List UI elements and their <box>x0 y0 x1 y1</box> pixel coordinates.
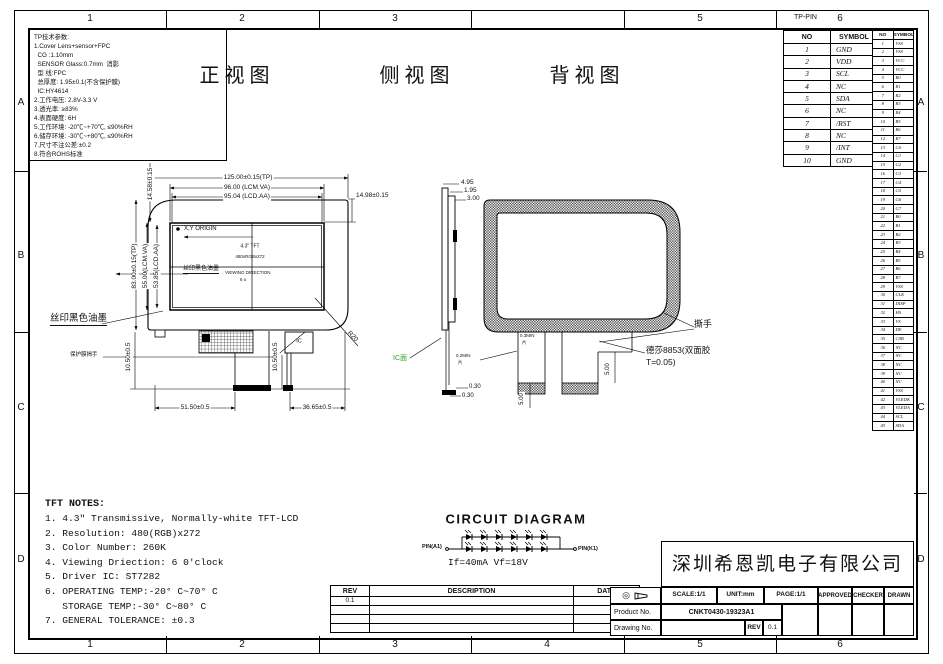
dim-fpc-height: 10.50±0.5 <box>126 342 133 373</box>
dim-width-tp: 125.00±0.15(TP) <box>223 175 274 182</box>
dim-fpc-position: 51.50±0.5 <box>180 405 211 412</box>
tape-label-line2: T=0.05) <box>646 358 676 367</box>
checker-value-cell <box>852 604 884 636</box>
panel-resolution-label: 480xRGBx272 <box>235 255 264 260</box>
ic-side-label: IC面 <box>393 355 407 362</box>
drawing-no-value <box>661 620 745 636</box>
text-line: 6. OPERATING TEMP:-20° C~70° C <box>45 585 350 600</box>
dim-tp-thickness: 1.95 <box>464 188 477 195</box>
tft-notes-title: TFT NOTES: <box>45 497 350 512</box>
dim-foot-1: 0.30 <box>469 384 481 390</box>
table-row <box>331 615 640 624</box>
circuit-leds <box>446 530 577 552</box>
text-line: 7. GENERAL TOLERANCE: ±0.3 <box>45 614 350 629</box>
table-cell <box>370 606 574 615</box>
front-view-outline <box>148 200 348 391</box>
table-cell <box>370 597 574 606</box>
circuit-pin-cathode: PIN(K1) <box>578 547 598 553</box>
protective-film-tab-label: 保护膜揭手 <box>70 353 98 359</box>
table-cell <box>331 615 370 624</box>
checker-header: CHECKER <box>852 587 884 604</box>
approved-value-cell <box>818 604 852 636</box>
circuit-pin-anode: PIN(A1) <box>422 545 442 551</box>
dim-ic-position: 36.65±0.5 <box>302 405 333 412</box>
text-line: STORAGE TEMP:-30° C~80° C <box>45 600 350 615</box>
circuit-led-spec: If=40mA Vf=18V <box>448 558 528 568</box>
drawn-value-cell <box>884 604 914 636</box>
drawn-header: DRAWN <box>884 587 914 604</box>
text-line: 5. Driver IC: ST7282 <box>45 570 350 585</box>
table-row: 0.1 <box>331 597 640 606</box>
ic-label: IC <box>296 339 302 345</box>
dim-ic-height: 10.50±0.5 <box>273 342 280 373</box>
dim-height-lcm-va: 55.00(LCM.VA) <box>143 243 150 289</box>
projection-cone-icon <box>633 591 649 601</box>
tape-label-line1: 德莎8853(双面胶 <box>646 346 710 355</box>
dim-height-lcd-aa: 53.85(LCD.AA) <box>153 243 160 289</box>
product-no-value: CNKT0430-19323A1 <box>661 604 782 620</box>
drawing-no-label: Drawing No. <box>610 620 661 636</box>
table-row <box>331 624 640 633</box>
panel-size-label: 4.3" TFT <box>240 245 259 250</box>
dim-tab-2: 5.00 <box>605 362 611 376</box>
viewing-direction-label: VIEWING DIRECTION <box>225 271 271 276</box>
tft-notes: TFT NOTES: 1. 4.3″ Transmissive, Normall… <box>45 497 350 629</box>
drawing-sheet: 1 2 3 5 6 1 2 3 4 5 6 A B C D A B C D TP… <box>0 0 943 664</box>
origin-label: X,Y ORIGIN <box>184 226 217 232</box>
text-line: 4. Viewing Driection: 6 0'clock <box>45 556 350 571</box>
tear-tab-label: 撕手 <box>694 320 712 329</box>
dim-width-lcm-va: 96.00 (LCM.VA) <box>223 185 271 192</box>
circuit-diagram-title: CIRCUIT DIAGRAM <box>446 513 587 526</box>
min-gap-mid-value: 0.3MIN <box>520 334 535 339</box>
dim-top-offset-right: 14.98±0.15 <box>355 193 389 200</box>
scale-cell: SCALE:1/1 <box>661 587 717 604</box>
silk-print-label-inner: 丝印黑色油墨 <box>183 266 219 274</box>
dim-foot-2: 0.30 <box>462 393 474 399</box>
table-cell <box>331 606 370 615</box>
dim-lcm-thickness: 3.00 <box>467 196 480 203</box>
min-gap-left-value: 0.2MIN <box>456 354 471 359</box>
page-cell: PAGE:1/1 <box>764 587 818 604</box>
rev-label-cell: REV <box>745 620 763 636</box>
table-cell: 0.1 <box>331 597 370 606</box>
dim-total-thickness: 4.95 <box>461 180 474 187</box>
min-gap-left-unit: 片 <box>458 361 463 366</box>
tft-notes-lines: 1. 4.3″ Transmissive, Normally-white TFT… <box>45 512 350 629</box>
dim-height-tp: 83.00±0.15(TP) <box>132 242 139 289</box>
min-gap-mid-unit: 片 <box>522 341 527 346</box>
text-line: 1. 4.3″ Transmissive, Normally-white TFT… <box>45 512 350 527</box>
title-block-empty-cell <box>782 604 818 636</box>
dim-top-offset-left: 14.58±0.15 <box>148 167 155 201</box>
column-header: DESCRIPTION <box>370 586 574 597</box>
unit-cell: UNIT:mm <box>717 587 764 604</box>
viewing-direction-value: 6 o <box>240 278 246 283</box>
first-angle-circle-icon: ◎ <box>622 591 630 600</box>
column-header: REV <box>331 586 370 597</box>
text-line: 3. Color Number: 260K <box>45 541 350 556</box>
table-cell <box>370 615 574 624</box>
table-row <box>331 606 640 615</box>
text-line: 2. Resolution: 480(RGB)x272 <box>45 527 350 542</box>
projection-symbols: ◎ <box>610 587 661 604</box>
table-header-row: REVDESCRIPTIONDATE <box>331 586 640 597</box>
dim-tab-1: 5.00 <box>519 392 525 406</box>
revision-table: REVDESCRIPTIONDATE0.1 <box>330 585 640 633</box>
silk-print-label: 丝印黑色油墨 <box>50 314 107 326</box>
dim-width-lcd-aa: 95.04 (LCD.AA) <box>223 194 271 201</box>
table-cell <box>370 624 574 633</box>
approved-header: APPROVED <box>818 587 852 604</box>
company-name: 深圳希恩凯电子有限公司 <box>661 541 914 587</box>
table: REVDESCRIPTIONDATE0.1 <box>330 585 640 633</box>
back-view-outline <box>480 200 694 408</box>
rev-value-cell: 0.1 <box>763 620 782 636</box>
product-no-label: Product No. <box>610 604 661 620</box>
table-cell <box>331 624 370 633</box>
